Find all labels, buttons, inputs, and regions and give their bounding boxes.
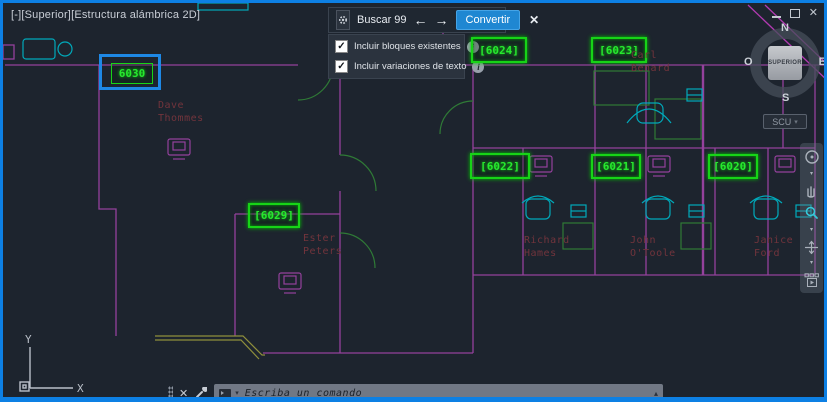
viewcube-face-label: SUPERIOR: [768, 60, 802, 66]
viewcube-west[interactable]: O: [744, 56, 753, 68]
viewport-label[interactable]: [-][Superior][Estructura alámbrica 2D]: [11, 9, 200, 21]
occupant-name: Ester Peters: [303, 232, 342, 258]
chevron-down-icon[interactable]: ▾: [810, 228, 813, 233]
room-tag-6030[interactable]: 6030: [111, 63, 153, 84]
pan-hand-icon[interactable]: [804, 183, 819, 198]
option-include-blocks[interactable]: ✓ Incluir bloques existentes i: [335, 40, 458, 53]
room-tag-6021[interactable]: [6021]: [591, 154, 641, 179]
room-tag-label: [6020]: [713, 160, 753, 173]
chevron-down-icon: ▾: [794, 118, 798, 126]
command-prompt-icon[interactable]: [219, 389, 231, 398]
occupant-name: Carl Benard: [631, 49, 670, 75]
occupant-name: John O'Toole: [630, 234, 676, 260]
checkbox-checked-icon[interactable]: ✓: [335, 40, 348, 53]
option-label: Incluir bloques existentes: [354, 41, 461, 52]
close-command-line-icon[interactable]: ✕: [179, 387, 188, 400]
steering-wheel-icon[interactable]: [804, 149, 820, 165]
chevron-down-icon[interactable]: ▾: [810, 261, 813, 266]
checkbox-checked-icon[interactable]: ✓: [335, 60, 348, 73]
orbit-icon[interactable]: [804, 240, 819, 255]
option-label: Incluir variaciones de texto: [354, 61, 466, 72]
room-tag-6022[interactable]: [6022]: [470, 153, 530, 179]
room-tag-6020[interactable]: [6020]: [708, 154, 758, 179]
customize-button[interactable]: [195, 387, 207, 399]
occupant-name: Richard Hames: [524, 234, 570, 260]
room-tag-6029[interactable]: [6029]: [248, 203, 300, 228]
chevron-up-icon[interactable]: ▴: [654, 389, 658, 398]
viewcube[interactable]: N S O E SUPERIOR: [745, 23, 825, 103]
viewcube-south[interactable]: S: [782, 92, 789, 104]
search-count-label: Buscar 99: [357, 14, 407, 26]
chevron-down-icon[interactable]: ▾: [810, 172, 813, 177]
command-input-field[interactable]: ▾ ▴: [214, 384, 663, 402]
room-tag-label: [6024]: [479, 44, 519, 57]
viewcube-top-face[interactable]: SUPERIOR: [768, 46, 802, 80]
option-include-text-variations[interactable]: ✓ Incluir variaciones de texto i: [335, 60, 458, 73]
room-tag-6024[interactable]: [6024]: [471, 37, 527, 63]
close-toolbar-icon[interactable]: ✕: [529, 13, 539, 27]
room-tag-label: [6022]: [480, 160, 520, 173]
ucs-dropdown-button[interactable]: SCU ▾: [763, 114, 807, 129]
chevron-down-icon[interactable]: ▾: [235, 389, 239, 397]
room-tag-label: [6021]: [596, 160, 636, 173]
olive-wall: [155, 336, 265, 359]
cad-window: X Y [-][Superior][Estructura alámbrica 2…: [0, 0, 827, 402]
window-controls: ✕: [772, 8, 818, 18]
find-toolbar: Buscar 99 ← → Convertir ✕: [328, 7, 506, 33]
viewcube-east[interactable]: E: [819, 56, 826, 68]
navigation-bar: ▾ ▾ ▾: [800, 143, 823, 293]
ucs-x-label: X: [77, 382, 84, 395]
showmotion-icon[interactable]: [804, 273, 820, 287]
settings-button[interactable]: [336, 10, 350, 30]
occupant-name: Janice Ford: [754, 234, 793, 260]
viewcube-north[interactable]: N: [781, 22, 789, 34]
zoom-icon[interactable]: [804, 205, 820, 221]
occupant-name: Dave Thommes: [158, 99, 204, 125]
drag-handle[interactable]: [168, 386, 173, 400]
command-input[interactable]: [243, 387, 647, 400]
next-result-button[interactable]: →: [435, 14, 449, 26]
ucs-icon: X Y: [20, 333, 84, 395]
ucs-y-label: Y: [25, 333, 32, 346]
convert-button[interactable]: Convertir: [456, 10, 521, 30]
minimize-icon[interactable]: [772, 8, 781, 18]
restore-icon[interactable]: [790, 9, 800, 18]
close-window-icon[interactable]: ✕: [809, 8, 818, 18]
ucs-dropdown-label: SCU: [772, 117, 791, 127]
wrench-icon: [195, 387, 207, 399]
room-tag-label: 6030: [119, 67, 146, 80]
command-line-bar: ✕ ▾ ▴: [168, 384, 663, 402]
room-tag-label: [6029]: [254, 209, 294, 222]
options-panel: ✓ Incluir bloques existentes i ✓ Incluir…: [328, 34, 465, 79]
gear-icon: [337, 14, 349, 26]
previous-result-button[interactable]: ←: [414, 14, 428, 26]
